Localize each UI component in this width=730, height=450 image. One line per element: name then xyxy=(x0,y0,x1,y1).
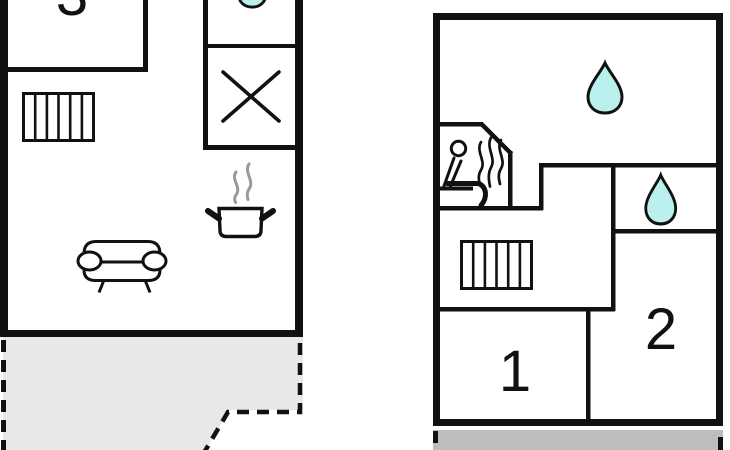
wall-room3-vertical xyxy=(143,0,148,71)
right-plan-walls xyxy=(433,13,723,426)
terrace xyxy=(3,337,303,450)
wall-stove-cell-bottom xyxy=(203,145,303,150)
left-plan-walls xyxy=(0,0,303,337)
steam-wave xyxy=(234,172,237,203)
wall-bottom xyxy=(433,419,723,426)
water-drop-icon xyxy=(588,63,622,113)
steam-wave xyxy=(247,164,251,200)
wall-bottom xyxy=(0,330,303,337)
pot-handle-right xyxy=(262,211,273,219)
wall-left xyxy=(0,0,8,337)
floor-plan-drawing xyxy=(0,0,730,450)
room-label-1: 1 xyxy=(485,340,545,405)
sauna-icon xyxy=(436,138,503,206)
wall-left xyxy=(433,13,440,426)
cooking-pot-icon xyxy=(208,164,273,237)
wall-sauna-chamfer xyxy=(482,124,512,154)
right-floor-plan xyxy=(433,13,723,450)
wall-sauna-top xyxy=(437,122,483,127)
terrace-area xyxy=(3,337,303,450)
balcony-dash-left xyxy=(433,431,438,443)
wall-right xyxy=(716,13,723,426)
wall-room3-horizontal xyxy=(0,67,148,72)
wall-top xyxy=(433,13,723,20)
wall-sauna-right xyxy=(508,151,513,210)
heat-wave xyxy=(479,142,483,185)
radiator-icon xyxy=(462,242,532,289)
wall-right xyxy=(295,0,303,337)
pot-body xyxy=(219,209,262,237)
room-label-2: 2 xyxy=(631,298,691,363)
wall-step-vertical xyxy=(539,165,544,210)
balcony-area xyxy=(433,430,723,450)
wall-room1-room2 xyxy=(586,310,591,420)
left-floor-plan xyxy=(0,0,303,450)
water-drop-icon xyxy=(646,175,676,224)
wall-bathroom-bottom xyxy=(611,229,723,234)
wall-sink-cell-bottom xyxy=(203,44,303,48)
radiator-icon xyxy=(24,94,94,141)
balcony xyxy=(433,430,723,450)
floor-plan-canvas: 3 1 2 xyxy=(0,0,730,450)
room-label-3: 3 xyxy=(42,0,102,29)
sofa-icon xyxy=(78,242,166,293)
wall-hall-top xyxy=(539,163,723,168)
water-drop-icon xyxy=(239,0,266,7)
wall-sauna-bottom xyxy=(437,206,543,211)
heat-wave xyxy=(489,138,493,187)
person-head xyxy=(451,141,465,155)
pot-handle-left xyxy=(208,211,219,219)
stove-icon xyxy=(223,72,279,121)
wall-kitchen-vertical xyxy=(203,0,208,150)
wall-divider-vertical xyxy=(611,165,616,311)
balcony-dash-right xyxy=(718,437,723,450)
